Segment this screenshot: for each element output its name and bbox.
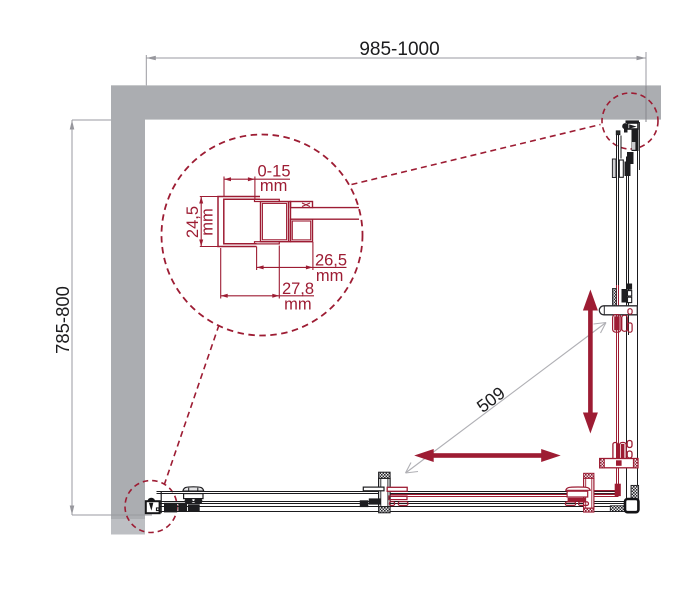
svg-text:785-800: 785-800 (52, 286, 73, 354)
svg-text:mm: mm (199, 208, 217, 236)
svg-text:mm: mm (260, 177, 288, 195)
svg-text:mm: mm (284, 296, 312, 314)
svg-text:985-1000: 985-1000 (359, 39, 439, 60)
svg-text:mm: mm (316, 267, 344, 285)
